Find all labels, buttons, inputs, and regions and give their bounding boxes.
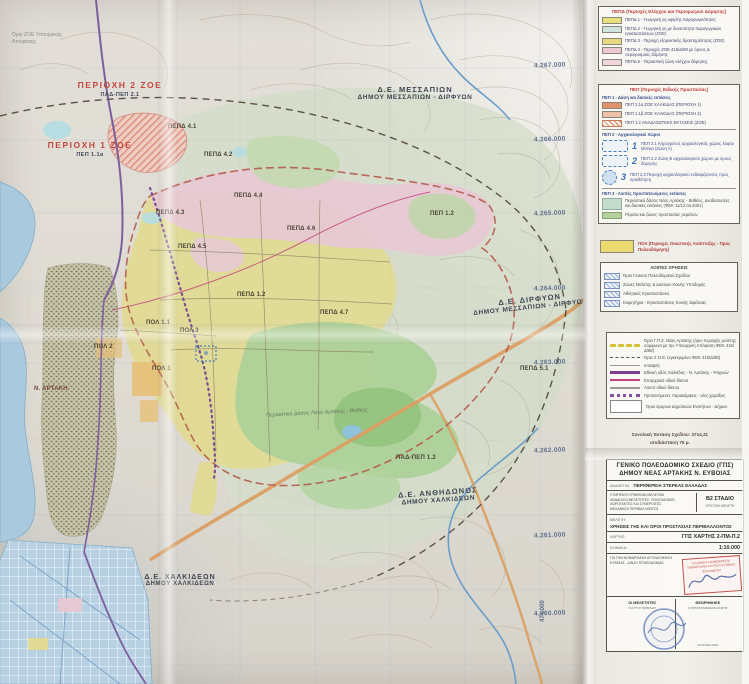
approval-lines: ΓΙΑ ΤΗΝ ΝΟΜΑΡΧΙΑΚΗ ΑΥΤΟΔΙΟΙΚΗΣΗ ΕΥΒΟΙΑΣ … [610, 556, 680, 566]
swatch-pol [600, 240, 634, 253]
zone-label: ΠΑΔ-ΠΕΠ 1.2 [396, 455, 436, 461]
legend-item-label: ΠΕΠ 1.1β ΖΟΕ ΧΑΛΚΙΔΑΣ (ΠΕΡΙΟΧΗ 2) [625, 111, 701, 116]
legend-footer-interval: ισοδιάσταση 75 μ. [598, 440, 742, 445]
client-label: ΑΝΑΘΕΤΗΣ: [610, 484, 631, 488]
swatch-pepd3 [602, 38, 622, 45]
stage-sub: ΟΡΙΣΤΙΚΗ ΜΕΛΕΤΗ [700, 504, 740, 508]
northing-label: 4.260.000 [534, 609, 566, 617]
legend-subtitle: ΠΕΠ 2 - Αρχαιολογικοί Χώροι [602, 129, 736, 137]
corner-note-line1: Όριο ΖΟΕ Υπουργικής [12, 32, 62, 39]
swatch-pepd2 [602, 26, 622, 33]
legend-footer-area: Συνολική Έκταση Σχεδίου: 3714,31 [598, 432, 742, 437]
stage-cell: Β2 ΣΤΑΔΙΟ ΟΡΙΣΤΙΚΗ ΜΕΛΕΤΗ [696, 493, 740, 511]
legend-item-label: Κοιμητήρια - Εγκαταστάσεις Κοινής Ωφέλει… [623, 300, 706, 305]
northing-label: 4.265.000 [534, 209, 566, 217]
client-value: ΠΕΡΙΦΕΡΕΙΑ ΣΤΕΡΕΑΣ ΕΛΛΑΔΑΣ [634, 483, 708, 488]
study-label: ΜΕΛΕΤΗ: [610, 518, 626, 522]
legend-item-label: Περιαστικό δάσος Νέας Αρτάκης - Βαθέος, … [625, 198, 736, 208]
scale-label: ΚΛΙΜΑΚΑ: [610, 546, 627, 550]
line-symbol-zoe-boundary [610, 357, 640, 358]
legend-item-label: ΠΕΠΔ 5 - Περιαστική ζώνη ελέγχου δόμησης [625, 59, 708, 64]
legend-panel-lines: Όριο Γ.Π.Σ. Νέας Αρτάκης (όριο περιοχής … [606, 332, 740, 419]
legend-subtitle: ΠΕΠ 3 - Λοιπές προστατευόμενες εκτάσεις [602, 188, 736, 196]
northing-label: 4.262.000 [534, 446, 566, 454]
zoe-area2-label: ΠΕΡΙΟΧΗ 2 ΖΟΕ [55, 80, 185, 90]
legend-panel-pep: ΠΕΠ (Περιοχές Ειδικής Προστασίας) ΠΕΠ 1 … [598, 84, 740, 224]
zoe-area1-label: ΠΕΡΙΟΧΗ 1 ΖΟΕ [25, 140, 155, 150]
swatch-pep3-streams [602, 212, 622, 219]
consultant-lines: ΣΥΜΠΡΑΞΗ ΓΡΑΦΕΙΩΝ ΜΕΛΕΤΩΝ ΑΝΑΔΟΧΟΙ ΜΕΛΕΤ… [610, 493, 693, 511]
stage-value: Β2 ΣΤΑΔΙΟ [700, 496, 740, 502]
signatures-box: ΟΙ ΜΕΛΕΤΗΤΕΣ ΓΙΑ ΤΗ ΣΥΜΠΡΑΞΗ ΘΕΩΡΗΘΗΚΕ Ο… [606, 596, 744, 652]
legend-item-label: Αθλητικές Εγκαταστάσεις [623, 291, 670, 296]
corner-note-line2: Απόφασης [12, 39, 62, 46]
zone-label: ΠΟΛ 1 [152, 366, 171, 372]
line-symbol-national-road [610, 371, 640, 374]
handwritten-signature [684, 568, 739, 592]
legend-title: ΠΕΠ (Περιοχές Ειδικής Προστασίας) [602, 87, 736, 93]
arch-zone-number: 1 [632, 141, 637, 151]
legend-item-label: Όρια Γενικού Πολεοδομικού Σχεδίου [623, 273, 690, 278]
title-block: ΓΕΝΙΚΟ ΠΟΛΕΟΔΟΜΙΚΟ ΣΧΕΔΙΟ (ΓΠΣ) ΔΗΜΟΥ ΝΕ… [606, 460, 744, 652]
legend-item-label: ΠΕΠΔ 1 - Γεωργική γη υψηλής παραγωγικότη… [625, 17, 716, 22]
legend-panel-pepd: ΠΕΠΔ (Περιοχές Ελέγχου και Περιορισμού Δ… [598, 6, 740, 71]
swatch-other [604, 282, 620, 289]
legend-title: ΠΕΠΔ (Περιοχές Ελέγχου και Περιορισμού Δ… [602, 9, 736, 15]
legend-item-label: ΠΟΛ (Περιοχές Οικιστικής Ανάπτυξης - Προ… [638, 241, 742, 252]
legend-item-label: Ρέματα και ζώνες προστασίας ρεμάτων [625, 212, 698, 217]
map-code-label: ΧΑΡΤΗΣ: [610, 535, 625, 539]
arch-zone-symbol [602, 155, 628, 167]
arch-zone-number: 3 [621, 172, 626, 182]
legend-item-label: Εθνική οδός Χαλκίδας - Ν. Αρτάκης - Ψαχν… [644, 370, 729, 375]
symbol-admin-boundaries [610, 400, 642, 413]
zone-label: ΠΟΛ 3 [180, 328, 199, 334]
sig-right-date: ΧΑΛΚΙΔΑ 2010 [676, 643, 741, 647]
sig-right-title: ΘΕΩΡΗΘΗΚΕ [677, 601, 740, 605]
zone-label: ΠΕΠΔ 4.4 [234, 193, 263, 199]
legend-item-label: Ζώνες Μελέτης & Δικτύων Κοινής Υποδομής [623, 282, 705, 287]
zone-label: ΠΟΛ 2 [94, 344, 113, 350]
arch-zone-symbol-circle [602, 170, 617, 185]
legend-item-label: ΠΕΠΔ 4 - Περιοχές ΖΟΕ 416/Δ/88 με όρους … [625, 47, 736, 57]
consultant-box: ΣΥΜΠΡΑΞΗ ΓΡΑΦΕΙΩΝ ΜΕΛΕΤΩΝ ΑΝΑΔΟΧΟΙ ΜΕΛΕΤ… [606, 490, 744, 514]
zone-label: ΠΕΠ 1.2 [430, 211, 454, 217]
map-code-value: ΓΠΣ ΧΑΡΤΗΣ 2-ΠΜ-Π.2 [682, 534, 740, 540]
swatch-pepd5 [602, 59, 622, 66]
line-symbol-gps-boundary [610, 344, 640, 347]
sig-right-sub: Ο ΠΡΟΪΣΤΑΜΕΝΟΣ Δ/ΝΣΗΣ [677, 606, 740, 610]
legend-item-label: ΠΕΠ 2.1 Κηρυγμένος αρχαιολογικός χώρος λ… [641, 141, 736, 151]
legend-item-label: Προτεινόμενες παρακάμψεις - νέες χαράξει… [644, 393, 725, 398]
legend-item-label: ΠΕΠΔ 3 - Περιοχή εξορυκτικής δραστηριότη… [625, 38, 725, 43]
approval-box: ΓΙΑ ΤΗΝ ΝΟΜΑΡΧΙΑΚΗ ΑΥΤΟΔΙΟΙΚΗΣΗ ΕΥΒΟΙΑΣ … [606, 553, 744, 597]
legend-subtitle: ΠΕΠ 1 - Δάση και δασικές εκτάσεις [602, 95, 736, 100]
paper-map-photo: Όριο ΖΟΕ Υπουργικής Απόφασης ΠΕΡΙΟΧΗ 2 Ζ… [0, 0, 749, 684]
legend-panel-other: ΛΟΙΠΕΣ ΧΡΗΣΕΙΣ Όρια Γενικού Πολεοδομικού… [600, 262, 738, 312]
red-approval-stamp: ΕΛΛΗΝΙΚΗ ΔΗΜΟΚΡΑΤΙΑ ΝΟΜΑΡΧΙΑΚΗ ΑΥΤ/ΣΗ ΕΥ… [682, 555, 742, 595]
legend-item-label: ΠΕΠ 1.2 ΑΝΑΔΑΣΩΤΕΕΣ ΕΚΤΑΣΕΙΣ (ΖΟΕ) [625, 120, 706, 125]
sig-left-title: ΟΙ ΜΕΛΕΤΗΤΕΣ [611, 601, 674, 605]
legend-item-label: ΠΕΠ 2.3 Περιοχή αρχαιολογικού ενδιαφέρον… [630, 172, 736, 182]
zoe-area2-sublabel: ΠΑΔ-ΠΕΠ 2.1 [55, 92, 185, 98]
legend-item-label: Όρια όμορων Δημοτικών Ενοτήτων - Δήμων [646, 404, 727, 409]
legend-item-label: Επαρχιακό οδικό δίκτυο [644, 378, 688, 383]
legend-item-label: Όριο Ζ.Ο.Ε. (εγκεκριμένο ΦΕΚ 416/Δ/88) [644, 355, 720, 360]
study-value: ΧΡΗΣΕΙΣ ΓΗΣ ΚΑΙ ΟΡΟΙ ΠΡΟΣΤΑΣΙΑΣ ΠΕΡΙΒΑΛΛ… [610, 524, 740, 529]
legend-item-label: ΠΕΠ 1.1α ΖΟΕ ΧΑΛΚΙΔΑΣ (ΠΕΡΙΟΧΗ 1) [625, 102, 701, 107]
zone-label: ΠΟΛ 1.1 [146, 320, 170, 326]
northing-label: 4.263.000 [534, 358, 566, 366]
swatch-pepd4 [602, 47, 622, 54]
scale-value: 1:10.000 [719, 545, 740, 551]
legend-item-label: Λοιπό οδικό δίκτυο [644, 385, 679, 390]
signature-column-right: ΘΕΩΡΗΘΗΚΕ Ο ΠΡΟΪΣΤΑΜΕΝΟΣ Δ/ΝΣΗΣ ΧΑΛΚΙΔΑ … [676, 599, 741, 649]
northing-label: 4.261.000 [534, 531, 566, 539]
easting-label: 474.000 [540, 600, 546, 622]
map-title-line1: ΓΕΝΙΚΟ ΠΟΛΕΟΔΟΜΙΚΟ ΣΧΕΔΙΟ (ΓΠΣ) [610, 462, 740, 470]
map-title-line2: ΔΗΜΟΥ ΝΕΑΣ ΑΡΤΑΚΗΣ Ν. ΕΥΒΟΙΑΣ [610, 470, 740, 478]
swatch-pep12 [602, 120, 622, 127]
line-symbol-other-road [610, 387, 640, 389]
northing-label: 4.267.000 [534, 61, 566, 69]
swatch-pep3-forest [602, 198, 622, 210]
zone-label: ΠΕΠΔ 5.1 [520, 366, 549, 372]
zone-label: ΠΕΠΔ 4.2 [204, 152, 233, 158]
swatch-other [604, 291, 620, 298]
legend-item-label: ΠΕΠΔ 2 - Γεωργική γη με δυνατότητα παραγ… [625, 26, 736, 36]
northing-label: 4.266.000 [534, 135, 566, 143]
northing-label: 4.264.000 [534, 284, 566, 292]
zone-label: ΠΕΠΔ 4.3 [156, 210, 185, 216]
legend-item-label: Όριο Γ.Π.Σ. Νέας Αρτάκης (όριο περιοχής … [644, 338, 736, 353]
zone-label: ΠΕΠΔ 4.6 [287, 226, 316, 232]
zone-label: ΠΕΠΔ 4.5 [178, 244, 207, 250]
swatch-other [604, 273, 620, 280]
line-symbol-provincial-road [610, 379, 640, 381]
legend-item-label: ΠΕΠ 2.2 Ζώνη Β αρχαιολογικού χώρου με όρ… [641, 156, 736, 166]
swatch-pepd1 [602, 17, 622, 24]
swatch-other [604, 300, 620, 307]
titleblock-header: ΓΕΝΙΚΟ ΠΟΛΕΟΔΟΜΙΚΟ ΣΧΕΔΙΟ (ΓΠΣ) ΔΗΜΟΥ ΝΕ… [606, 459, 744, 481]
line-symbol-proposed-road [610, 394, 640, 397]
legend-pol-row: ΠΟΛ (Περιοχές Οικιστικής Ανάπτυξης - Προ… [600, 240, 742, 253]
swatch-pep11b [602, 111, 622, 118]
town-label-nea-artaki: Ν. ΑΡΤΑΚΗ [34, 386, 68, 392]
swatch-pep11a [602, 102, 622, 109]
arch-zone-number: 2 [632, 156, 637, 166]
zoe-area1-sublabel: ΠΕΠ 1.1α [25, 152, 155, 158]
study-box: ΜΕΛΕΤΗ: ΧΡΗΣΕΙΣ ΓΗΣ ΚΑΙ ΟΡΟΙ ΠΡΟΣΤΑΣΙΑΣ … [606, 514, 744, 532]
arch-zone-symbol [602, 140, 628, 152]
line-symbol-contours [610, 365, 640, 366]
zone-label: ΠΕΠΔ 1.2 [237, 292, 266, 298]
zone-label: ΠΕΠΔ 4.7 [320, 310, 349, 316]
legend-title: ΛΟΙΠΕΣ ΧΡΗΣΕΙΣ [604, 265, 734, 271]
zone-label: ΠΕΠΔ 4.1 [168, 124, 197, 130]
signature-column-left: ΟΙ ΜΕΛΕΤΗΤΕΣ ΓΙΑ ΤΗ ΣΥΜΠΡΑΞΗ [610, 599, 676, 649]
legend-item-label: Ισοϋψείς [644, 363, 660, 368]
corner-note: Όριο ΖΟΕ Υπουργικής Απόφασης [12, 32, 62, 45]
